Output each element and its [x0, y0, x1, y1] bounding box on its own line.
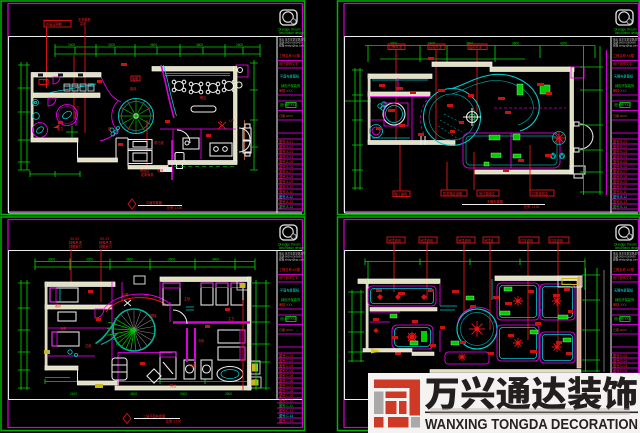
svg-text:图号 B-10: 图号 B-10 [613, 184, 627, 189]
svg-text:次卧: 次卧 [198, 338, 205, 343]
svg-text:走廊: 走廊 [122, 292, 129, 297]
svg-text:3400: 3400 [212, 258, 219, 262]
svg-text:图号 A-02: 图号 A-02 [279, 144, 293, 149]
svg-text:图号 D-04: 图号 D-04 [613, 368, 627, 373]
svg-text:邮箱:design@qq.com: 邮箱:design@qq.com [613, 44, 638, 48]
svg-text:门厅: 门厅 [43, 79, 50, 84]
svg-text:绿色环保装饰: 绿色环保装饰 [281, 297, 300, 302]
svg-text:2400: 2400 [68, 43, 75, 47]
svg-text:详图索引: 详图索引 [69, 244, 82, 249]
svg-text:入户: 入户 [228, 118, 234, 123]
svg-text:比例 1:100: 比例 1:100 [166, 419, 181, 424]
svg-text:邮箱:design@qq.com: 邮箱:design@qq.com [613, 258, 638, 262]
svg-text:客卧: 客卧 [55, 303, 62, 308]
svg-text:阳台: 阳台 [170, 383, 176, 388]
svg-text:图号 C-12: 图号 C-12 [279, 408, 293, 413]
svg-text:图号 C-13: 图号 C-13 [279, 413, 293, 418]
svg-text:decoration design: decoration design [615, 31, 640, 35]
svg-text:图号 A-04: 图号 A-04 [279, 154, 293, 159]
svg-text:图号 A-14: 图号 A-14 [279, 204, 293, 209]
svg-text:3200: 3200 [108, 43, 115, 47]
svg-text:邮箱:design@qq.com: 邮箱:design@qq.com [279, 44, 304, 48]
svg-text:二层平面布置图: 二层平面布置图 [143, 414, 165, 419]
svg-text:图号 B-04: 图号 B-04 [613, 154, 627, 159]
svg-text:图号 A-08: 图号 A-08 [279, 174, 293, 179]
svg-text:图号 C-09: 图号 C-09 [279, 393, 293, 398]
svg-text:图号 C-14: 图号 C-14 [279, 418, 293, 423]
svg-text:吊顶说: 吊顶说 [484, 238, 494, 243]
svg-text:灯带吊顶: 灯带吊顶 [389, 45, 403, 50]
svg-text:石膏吊顶: 石膏吊顶 [429, 45, 443, 50]
svg-text:平面布置图纸: 平面布置图纸 [280, 288, 300, 293]
svg-text:3300: 3300 [86, 258, 93, 262]
svg-text:图号 A-03: 图号 A-03 [279, 149, 293, 154]
svg-text:衣帽: 衣帽 [190, 363, 196, 368]
svg-text:图号 A-07: 图号 A-07 [279, 169, 293, 174]
svg-text:图号 B-11: 图号 B-11 [613, 189, 627, 194]
svg-text:灯具说明: 灯具说明 [550, 238, 563, 243]
svg-text:图号 B-05: 图号 B-05 [613, 159, 627, 164]
svg-text:图号 A-10: 图号 A-10 [279, 184, 293, 189]
svg-text:工程名称:XX楼: 工程名称:XX楼 [613, 267, 635, 272]
svg-text:休息区隔断: 休息区隔断 [46, 22, 63, 27]
svg-text:图号 C-06: 图号 C-06 [279, 378, 293, 383]
svg-text:绿色环保装饰: 绿色环保装饰 [615, 297, 634, 302]
svg-text:审核:XXX: 审核:XXX [613, 302, 628, 307]
svg-text:平面布置图: 平面布置图 [146, 200, 162, 205]
svg-text:比例 1:100: 比例 1:100 [524, 204, 539, 209]
svg-text:2600: 2600 [236, 43, 243, 47]
svg-text:图号 B-08: 图号 B-08 [613, 174, 627, 179]
svg-text:3600: 3600 [126, 258, 133, 262]
svg-text:3000: 3000 [48, 258, 55, 262]
svg-text:3800: 3800 [196, 43, 203, 47]
svg-text:3600: 3600 [512, 42, 519, 46]
svg-text:2800: 2800 [225, 392, 232, 396]
svg-text:图号 C-11: 图号 C-11 [279, 403, 293, 408]
svg-text:天棚布置图纸: 天棚布置图纸 [614, 288, 634, 293]
svg-text:3000: 3000 [180, 392, 187, 396]
svg-text:decoration design: decoration design [279, 31, 304, 35]
svg-text:电箱: 电箱 [132, 76, 139, 81]
svg-text:防雾筒灯说明: 防雾筒灯说明 [443, 191, 462, 196]
svg-text:2400: 2400 [70, 392, 77, 396]
svg-text:图号 B-13: 图号 B-13 [613, 199, 627, 204]
svg-text:图号 D-03: 图号 D-03 [613, 363, 627, 368]
svg-text:图号 D-02: 图号 D-02 [613, 358, 627, 363]
svg-text:绿色环保装饰: 绿色环保装饰 [615, 83, 634, 88]
svg-text:3600: 3600 [130, 392, 137, 396]
svg-text:图号 C-03: 图号 C-03 [279, 363, 293, 368]
svg-text:图号 C-07: 图号 C-07 [279, 383, 293, 388]
svg-text:图号 A-05: 图号 A-05 [279, 159, 293, 164]
svg-text:图号 A-06: 图号 A-06 [279, 164, 293, 169]
svg-text:天棚布置图纸: 天棚布置图纸 [614, 74, 634, 79]
svg-text:图号 A-09: 图号 A-09 [279, 179, 293, 184]
svg-text:接待: 接待 [130, 86, 137, 91]
svg-text:日期:20XX: 日期:20XX [613, 327, 627, 332]
svg-text:吊顶说明: 吊顶说明 [420, 238, 433, 243]
svg-text:decoration design: decoration design [615, 246, 640, 250]
svg-text:审核:XXX: 审核:XXX [613, 88, 628, 93]
svg-text:灯具说明: 灯具说明 [520, 238, 533, 243]
svg-text:定制: 定制 [80, 21, 86, 26]
svg-text:设计说明文字: 设计说明文字 [613, 275, 632, 280]
svg-text:详图索引: 详图索引 [99, 244, 112, 249]
svg-text:电视: 电视 [157, 168, 164, 173]
svg-text:图号 B-03: 图号 B-03 [613, 149, 627, 154]
svg-text:3600: 3600 [150, 43, 157, 47]
svg-text:定制家具: 定制家具 [141, 172, 155, 177]
svg-text:工程名称:XX楼: 工程名称:XX楼 [613, 53, 635, 58]
svg-text:书房: 书房 [60, 326, 66, 331]
svg-text:主卫: 主卫 [228, 316, 235, 321]
svg-text:吊顶说明: 吊顶说明 [458, 238, 471, 243]
svg-text:图号 C-01: 图号 C-01 [279, 353, 293, 358]
svg-text:图号 A-13: 图号 A-13 [279, 199, 293, 204]
svg-text:绿色环保装饰: 绿色环保装饰 [281, 83, 300, 88]
svg-text:主卧: 主卧 [184, 296, 191, 301]
svg-text:图号 D-01: 图号 D-01 [613, 353, 627, 358]
svg-text:弧形吊顶: 弧形吊顶 [469, 45, 483, 50]
svg-text:图号 C-10: 图号 C-10 [279, 398, 293, 403]
svg-text:客卫: 客卫 [57, 126, 64, 131]
svg-text:灯带说明文: 灯带说明文 [532, 191, 549, 196]
svg-text:设计说明文字: 设计说明文字 [279, 275, 298, 280]
svg-text:审核:XXX: 审核:XXX [279, 302, 294, 307]
svg-text:设计说明文字: 设计说明文字 [613, 61, 632, 66]
svg-text:楼梯: 楼梯 [150, 313, 157, 318]
svg-text:图号 C-02: 图号 C-02 [279, 358, 293, 363]
svg-text:天棚布置图: 天棚布置图 [487, 199, 503, 204]
svg-text:吊顶说明: 吊顶说明 [388, 238, 401, 243]
svg-text:比例 1:100: 比例 1:100 [167, 205, 182, 210]
svg-text:图号 B-12: 图号 B-12 [613, 194, 627, 199]
svg-text:图号 C-05: 图号 C-05 [279, 373, 293, 378]
svg-text:图号 B-07: 图号 B-07 [613, 169, 627, 174]
svg-text:日期:20XX: 日期:20XX [613, 113, 627, 118]
svg-text:茶几组: 茶几组 [154, 140, 164, 145]
svg-text:图号 A-12: 图号 A-12 [279, 194, 293, 199]
svg-text:decoration design: decoration design [279, 246, 304, 250]
svg-text:日期:20XX: 日期:20XX [279, 327, 293, 332]
svg-text:图号 A-11: 图号 A-11 [279, 189, 293, 194]
svg-text:图号 B-01: 图号 B-01 [613, 139, 627, 144]
svg-text:餐区: 餐区 [200, 95, 207, 100]
svg-text:4200: 4200 [560, 42, 567, 46]
svg-text:平面布置图纸: 平面布置图纸 [280, 74, 300, 79]
svg-text:WANXING TONGDA DECORATION: WANXING TONGDA DECORATION [425, 417, 638, 433]
svg-text:日期:20XX: 日期:20XX [279, 113, 293, 118]
svg-text:图号 C-04: 图号 C-04 [279, 368, 293, 373]
svg-text:设计说明文字: 设计说明文字 [279, 61, 298, 66]
svg-text:工程名称:XX楼: 工程名称:XX楼 [279, 267, 301, 272]
svg-text:吊灯说明文: 吊灯说明文 [479, 191, 496, 196]
svg-text:图号 B-06: 图号 B-06 [613, 164, 627, 169]
svg-text:邮箱:design@qq.com: 邮箱:design@qq.com [279, 258, 304, 262]
svg-text:工程名称:XX楼: 工程名称:XX楼 [279, 53, 301, 58]
svg-text:图号 B-14: 图号 B-14 [613, 204, 627, 209]
svg-text:图号 B-09: 图号 B-09 [613, 179, 627, 184]
svg-text:审核:XXX: 审核:XXX [279, 88, 294, 93]
svg-text:筒灯说明: 筒灯说明 [394, 192, 407, 197]
svg-text:图号 A-01: 图号 A-01 [279, 139, 293, 144]
svg-text:图号 B-02: 图号 B-02 [613, 144, 627, 149]
svg-text:3900: 3900 [168, 258, 175, 262]
svg-text:过道: 过道 [85, 343, 92, 348]
svg-text:图号 C-08: 图号 C-08 [279, 388, 293, 393]
